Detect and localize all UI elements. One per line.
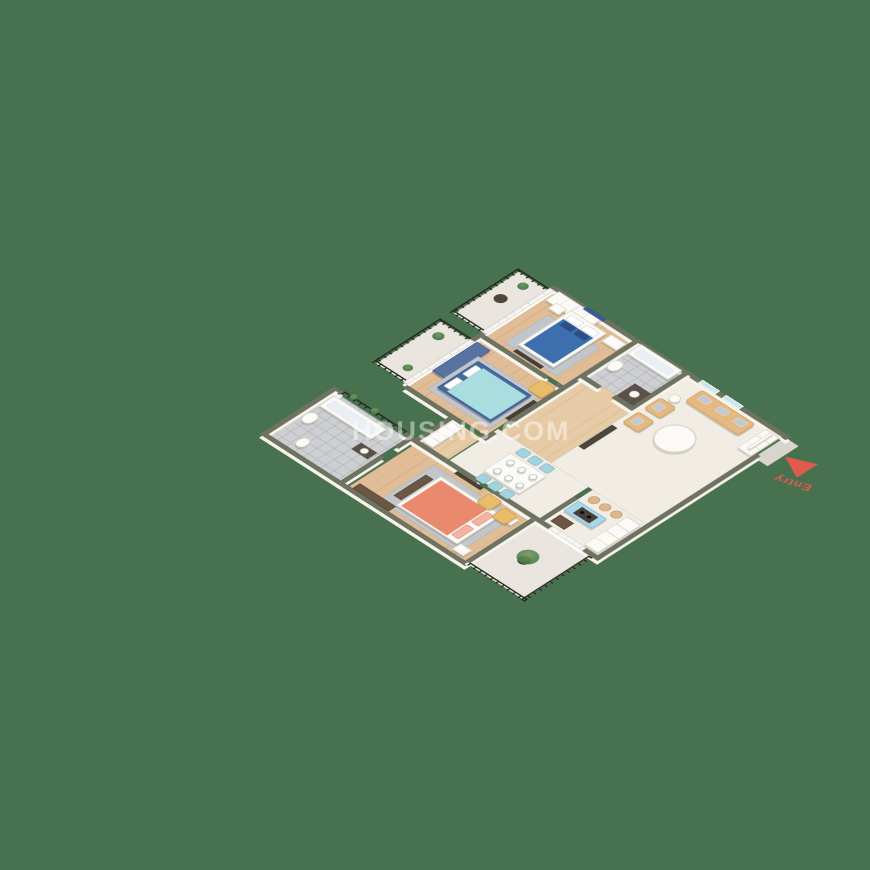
plate3	[527, 473, 539, 481]
stove-burner2	[584, 514, 594, 520]
floorplan-canvas: { "title": "3D isometric apartment floor…	[0, 0, 870, 870]
watermark: HOUSING.COM	[352, 416, 571, 447]
plate6	[514, 481, 526, 489]
sofa-cushion2	[714, 406, 731, 417]
plate4	[491, 467, 503, 475]
armchair2-cushion	[629, 416, 645, 426]
plate1	[504, 459, 516, 467]
plate2	[516, 466, 528, 474]
plate5	[502, 474, 514, 482]
bathroom2-sink	[358, 447, 370, 455]
bathroom1-sink	[627, 389, 642, 399]
sofa-cushion3	[731, 417, 748, 428]
sofa-cushion1	[697, 395, 714, 406]
armchair1-cushion	[651, 402, 667, 412]
